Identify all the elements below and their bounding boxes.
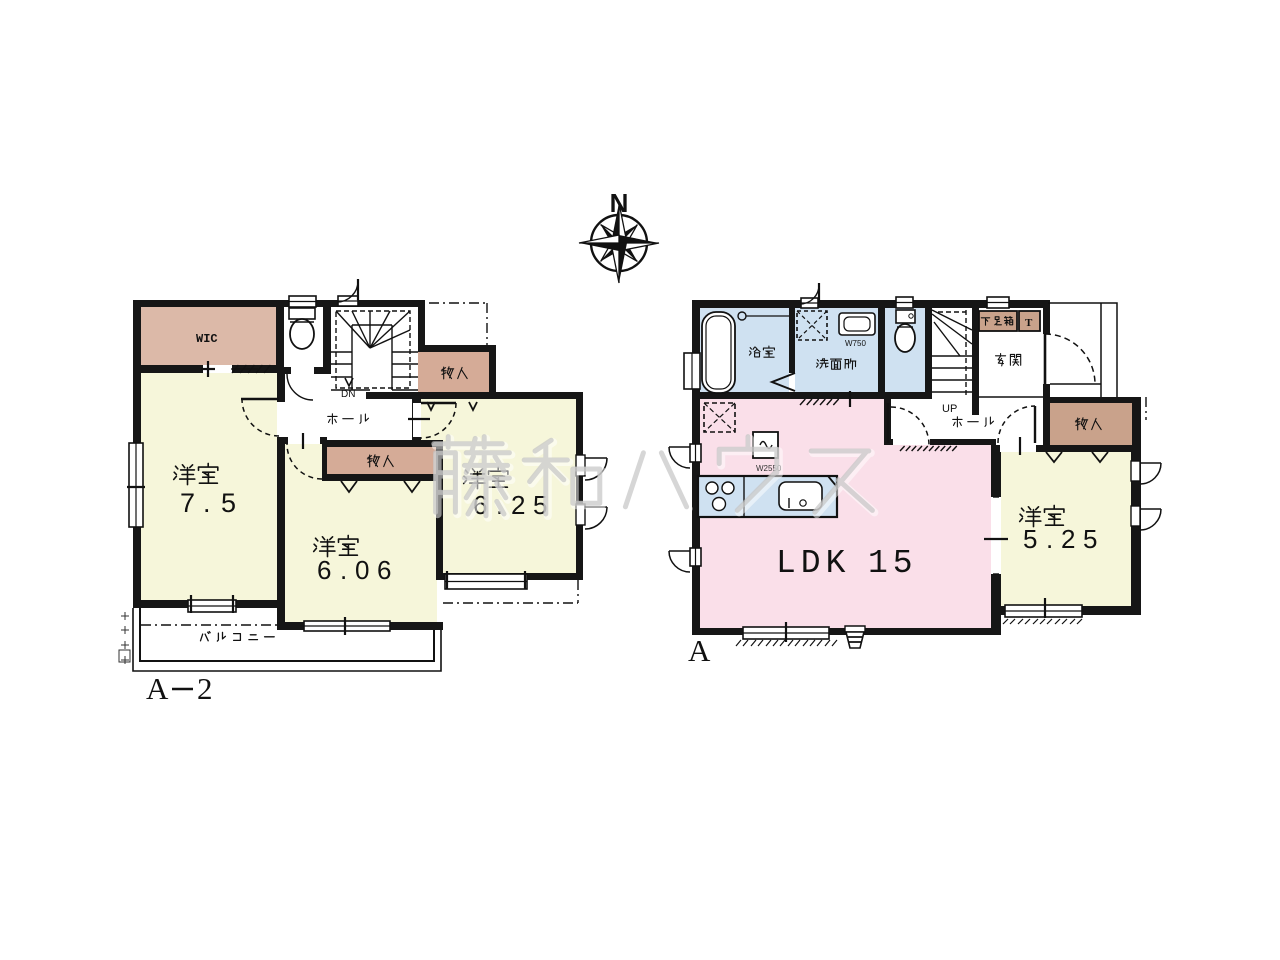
svg-text:5: 5 [1083, 524, 1097, 554]
svg-text:.: . [340, 555, 347, 585]
svg-text:6: 6 [377, 555, 391, 585]
svg-text:2: 2 [197, 671, 213, 706]
svg-text:W750: W750 [845, 339, 866, 348]
svg-text:A: A [146, 671, 169, 706]
svg-text:T: T [1025, 317, 1033, 329]
svg-text:15: 15 [868, 545, 918, 582]
svg-text:A: A [688, 633, 711, 668]
svg-text:LDK: LDK [776, 545, 850, 582]
svg-text:7: 7 [180, 488, 195, 518]
svg-text:2: 2 [1061, 524, 1075, 554]
svg-text:5: 5 [1023, 524, 1037, 554]
svg-text:5: 5 [221, 488, 236, 518]
svg-text:0: 0 [355, 555, 369, 585]
svg-text:6: 6 [317, 555, 331, 585]
svg-text:.: . [1046, 524, 1053, 554]
svg-text:2: 2 [511, 490, 525, 520]
svg-text:DN: DN [341, 389, 355, 400]
svg-text:.: . [203, 488, 211, 518]
svg-text:UP: UP [942, 403, 957, 415]
svg-text:WIC: WIC [196, 332, 218, 346]
